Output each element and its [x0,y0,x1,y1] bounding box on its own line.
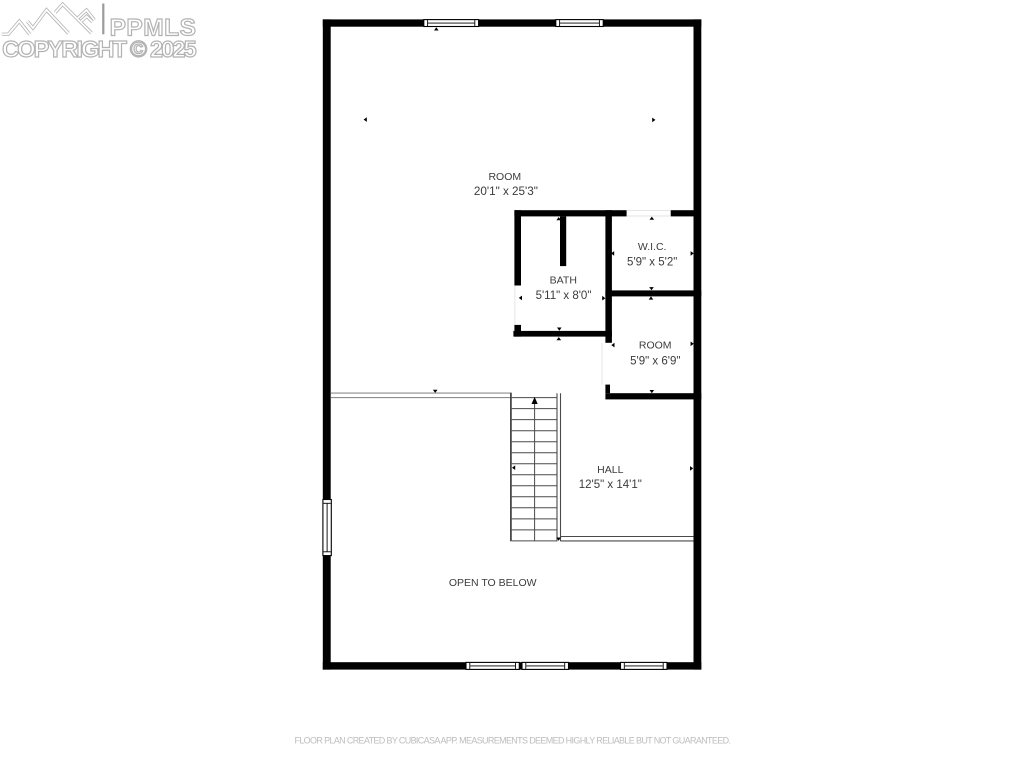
svg-text:ROOM: ROOM [639,340,672,352]
svg-text:BATH: BATH [550,274,577,286]
svg-text:5'11" x 8'0": 5'11" x 8'0" [536,290,592,302]
svg-text:5'9" x 6'9": 5'9" x 6'9" [630,356,680,368]
svg-text:5'9" x 5'2": 5'9" x 5'2" [627,257,677,269]
svg-text:HALL: HALL [597,464,623,476]
svg-text:COPYRIGHT © 2025: COPYRIGHT © 2025 [2,36,197,62]
svg-text:20'1" x 25'3": 20'1" x 25'3" [474,185,538,198]
svg-text:ROOM: ROOM [488,171,521,183]
svg-text:W.I.C.: W.I.C. [638,241,667,253]
svg-text:FLOOR PLAN CREATED BY CUBICASA: FLOOR PLAN CREATED BY CUBICASA APP. MEAS… [294,736,730,746]
svg-text:12'5" x 14'1": 12'5" x 14'1" [579,479,642,491]
svg-text:OPEN TO BELOW: OPEN TO BELOW [449,577,537,589]
